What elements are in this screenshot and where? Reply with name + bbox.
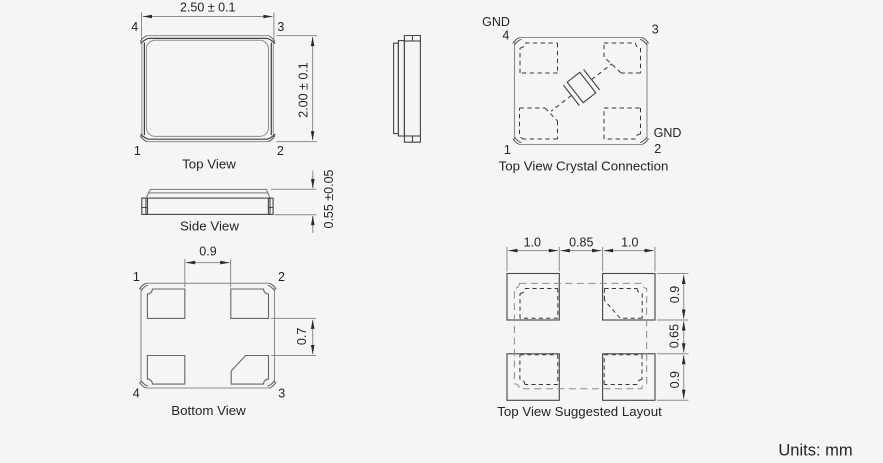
svg-text:GND: GND — [482, 15, 510, 29]
svg-text:4: 4 — [133, 386, 140, 400]
svg-text:4: 4 — [131, 20, 138, 34]
svg-text:GND: GND — [654, 126, 682, 140]
svg-text:2: 2 — [654, 142, 661, 156]
svg-text:Top View: Top View — [182, 157, 236, 172]
svg-text:Top View Suggested Layout: Top View Suggested Layout — [497, 404, 662, 419]
svg-text:3: 3 — [278, 386, 285, 400]
svg-text:1.0: 1.0 — [524, 235, 541, 249]
svg-text:4: 4 — [502, 28, 509, 42]
svg-text:1: 1 — [504, 143, 511, 157]
svg-text:1.0: 1.0 — [621, 235, 638, 249]
svg-text:3: 3 — [652, 22, 659, 36]
svg-text:1: 1 — [133, 270, 140, 284]
svg-text:0.85: 0.85 — [569, 235, 593, 249]
svg-text:2.00 ± 0.1: 2.00 ± 0.1 — [296, 62, 310, 118]
svg-text:Units: mm: Units: mm — [778, 442, 852, 460]
svg-text:2: 2 — [277, 144, 284, 158]
svg-text:Top View Crystal Connection: Top View Crystal Connection — [499, 158, 669, 173]
svg-text:2: 2 — [278, 270, 285, 284]
svg-text:0.9: 0.9 — [668, 371, 682, 388]
svg-text:Side View: Side View — [180, 219, 239, 234]
svg-text:Bottom View: Bottom View — [171, 403, 246, 418]
svg-text:3: 3 — [277, 20, 284, 34]
svg-text:0.65: 0.65 — [668, 324, 682, 348]
svg-text:0.9: 0.9 — [199, 244, 216, 258]
svg-text:1: 1 — [134, 144, 141, 158]
svg-text:0.7: 0.7 — [295, 328, 309, 345]
svg-text:2.50 ± 0.1: 2.50 ± 0.1 — [180, 1, 236, 15]
svg-text:0.55 ±0.05: 0.55 ±0.05 — [322, 169, 336, 228]
svg-text:0.9: 0.9 — [668, 286, 682, 303]
